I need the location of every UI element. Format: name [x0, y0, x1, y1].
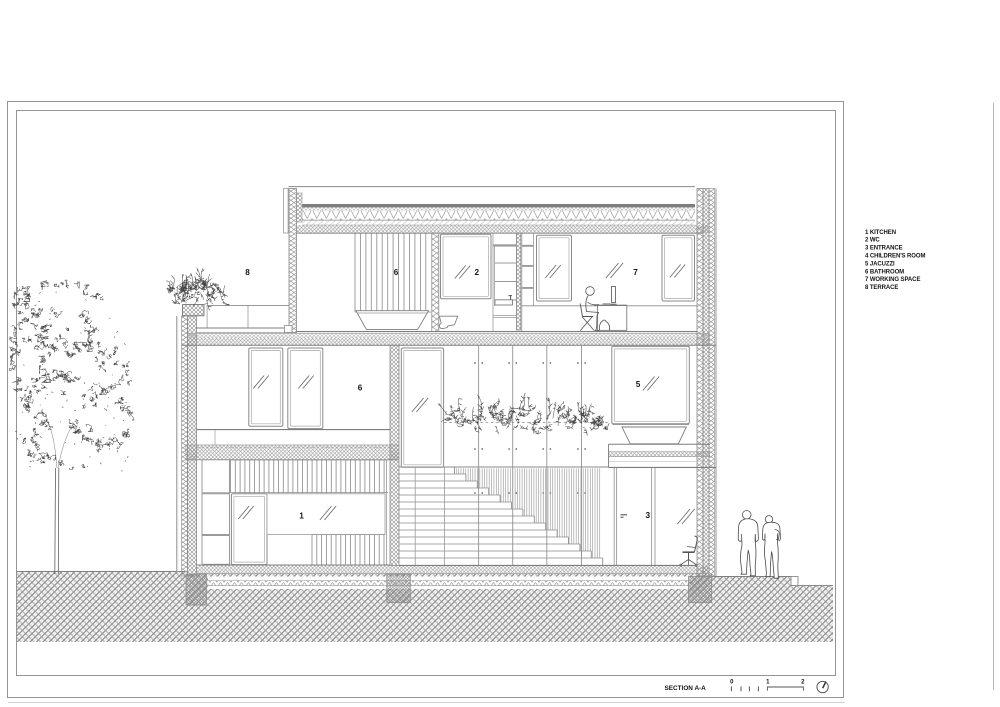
- svg-text:2 WC: 2 WC: [865, 238, 880, 244]
- svg-text:7 WORKING SPACE: 7 WORKING SPACE: [865, 277, 920, 283]
- svg-text:4 CHILDREN'S ROOM: 4 CHILDREN'S ROOM: [865, 254, 925, 260]
- svg-text:7: 7: [633, 268, 638, 277]
- svg-text:3 ENTRANCE: 3 ENTRANCE: [865, 246, 903, 252]
- svg-text:SECTION A-A: SECTION A-A: [665, 685, 707, 692]
- svg-text:5: 5: [636, 380, 641, 389]
- svg-text:6: 6: [394, 268, 399, 277]
- svg-text:8: 8: [245, 268, 250, 277]
- svg-text:6: 6: [358, 384, 363, 393]
- svg-text:1 KITCHEN: 1 KITCHEN: [865, 230, 896, 236]
- svg-text:6 BATHROOM: 6 BATHROOM: [865, 269, 904, 275]
- svg-text:2: 2: [475, 268, 480, 277]
- svg-text:5 JACUZZI: 5 JACUZZI: [865, 261, 895, 267]
- svg-text:8 TERRACE: 8 TERRACE: [865, 285, 898, 291]
- svg-text:3: 3: [646, 511, 651, 520]
- svg-text:1: 1: [299, 512, 304, 521]
